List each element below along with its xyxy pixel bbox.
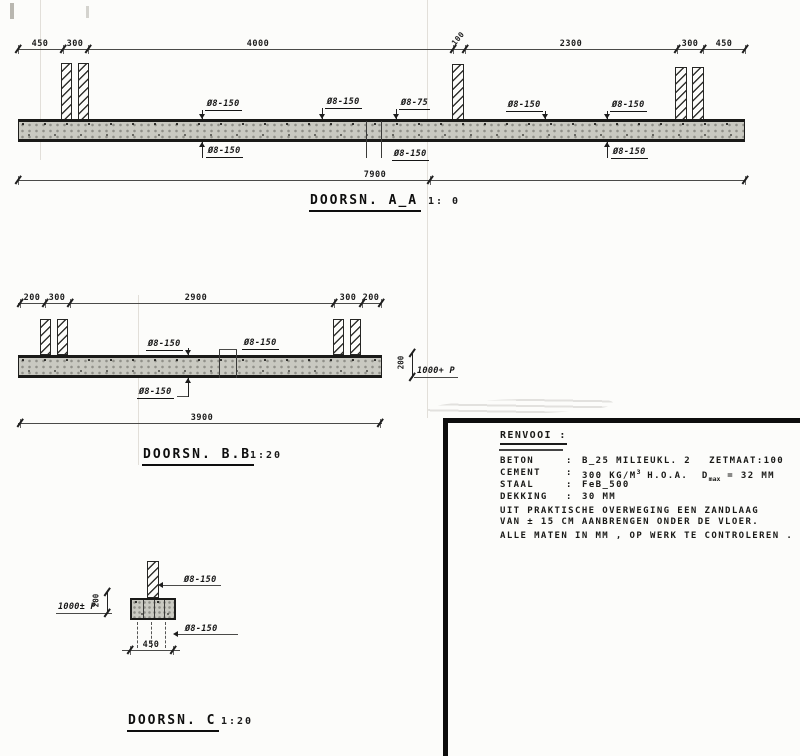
- legend-subscript: max: [709, 475, 721, 483]
- rebar-callout: Ø8-150: [146, 339, 183, 351]
- masonry-wall: [57, 319, 68, 355]
- legend-value-part: = 32 MM: [720, 471, 775, 481]
- block-joint: [164, 600, 165, 618]
- scan-mark: [86, 6, 89, 18]
- leader-line: [219, 349, 237, 350]
- legend-title: RENVOOI :: [500, 430, 567, 445]
- scan-mark: [10, 3, 14, 19]
- legend-row-beton: BETON:B_25 MILIEUKL. 2ZETMAAT:100: [500, 456, 784, 466]
- leader-arrow: [185, 378, 191, 383]
- leader-line: [176, 634, 238, 635]
- projection-line: [165, 622, 166, 648]
- masonry-wall: [675, 67, 687, 120]
- dim-label: 300: [682, 39, 699, 49]
- dim-label: 300: [49, 293, 66, 303]
- slab-joint: [236, 349, 237, 378]
- dim-label: 450: [32, 39, 49, 49]
- thickness-label: 200: [396, 356, 405, 370]
- dim-label: 2300: [560, 39, 582, 49]
- rebar-callout: Ø8-150: [242, 338, 279, 350]
- dim-label: 2900: [185, 293, 207, 303]
- level-mark: 1000+ P: [417, 366, 455, 376]
- dim-label: 300: [67, 39, 84, 49]
- legend-row-staal: STAAL:FeB_500: [500, 480, 630, 490]
- block-joint: [154, 600, 155, 618]
- masonry-wall: [333, 319, 344, 355]
- section-scale-c: 1:20: [221, 716, 253, 727]
- rebar-callout: Ø8-150: [206, 146, 243, 158]
- rebar-callout: Ø8-75: [399, 98, 430, 110]
- legend-label: STAAL: [500, 480, 566, 490]
- dim-label: 200: [363, 293, 380, 303]
- dim-label-total: 3900: [191, 413, 213, 423]
- level-line: [414, 377, 458, 378]
- legend-extra: ZETMAAT:100: [709, 456, 784, 466]
- masonry-wall: [692, 67, 704, 120]
- leader-line: [161, 585, 221, 586]
- leader-arrow: [158, 582, 163, 588]
- leader-arrow: [199, 142, 205, 147]
- leader-arrow: [185, 350, 191, 355]
- dim-label: 450: [143, 640, 160, 650]
- section-title-bb: DOORSN. B.B: [142, 447, 254, 466]
- rebar-callout: Ø8-150: [325, 97, 362, 109]
- masonry-wall: [61, 63, 72, 120]
- masonry-wall: [147, 561, 159, 598]
- dim-label: 200: [24, 293, 41, 303]
- dim-line-aa-top: [18, 49, 745, 50]
- leader-arrow: [542, 114, 548, 119]
- legend-value: FeB_500: [582, 480, 630, 490]
- section-scale-bb: 1:20: [250, 450, 282, 461]
- slab-joint: [381, 121, 382, 158]
- legend-label: DEKKING: [500, 492, 566, 502]
- concrete-slab-bb: [18, 355, 382, 378]
- scan-smudge: [428, 396, 613, 417]
- dim-line-bb-top: [18, 303, 382, 304]
- section-title-c: DOORSN. C: [127, 713, 219, 732]
- leader-arrow: [173, 631, 178, 637]
- rebar-callout: Ø8-150: [392, 149, 429, 161]
- masonry-wall: [350, 319, 361, 355]
- legend-title-underline: [499, 449, 563, 451]
- concrete-block-c: [130, 598, 176, 620]
- leader-arrow: [199, 114, 205, 119]
- leader-arrow: [604, 142, 610, 147]
- legend-colon: :: [566, 492, 582, 502]
- thickness-label: 200: [91, 594, 100, 608]
- rebar-callout: Ø8-150: [137, 387, 174, 399]
- legend-value: B_25 MILIEUKL. 2: [582, 456, 691, 466]
- slab-joint: [219, 349, 220, 378]
- projection-line: [137, 622, 138, 648]
- rebar-callout: Ø8-150: [610, 100, 647, 112]
- dim-label: 450: [716, 39, 733, 49]
- leader-arrow: [604, 114, 610, 119]
- dim-line-aa-total: [18, 180, 745, 181]
- legend-colon: :: [566, 456, 582, 466]
- legend-note: ALLE MATEN IN MM , OP WERK TE CONTROLERE…: [500, 531, 793, 541]
- fold-line: [138, 295, 139, 465]
- masonry-wall: [78, 63, 89, 120]
- dim-label: 4000: [247, 39, 269, 49]
- legend-note: VAN ± 15 CM AANBRENGEN ONDER DE VLOER.: [500, 517, 759, 527]
- dim-label: 300: [340, 293, 357, 303]
- rebar-callout: Ø8-150: [205, 99, 242, 111]
- drawing-canvas: 450 300 4000 100 2300 300 450 Ø8-150 Ø8-…: [0, 0, 800, 756]
- rebar-callout: Ø8-150: [611, 147, 648, 159]
- legend-label: BETON: [500, 456, 566, 466]
- legend-value-part: H.O.A. D: [640, 471, 708, 481]
- rebar-callout: Ø8-150: [185, 624, 218, 634]
- dim-label-total: 7900: [364, 170, 386, 180]
- level-line: [56, 613, 112, 614]
- leader-arrow: [319, 114, 325, 119]
- rebar-callout: Ø8-150: [184, 575, 217, 585]
- slab-joint: [366, 121, 367, 158]
- leader-arrow: [393, 114, 399, 119]
- block-joint: [143, 600, 144, 618]
- section-title-aa: DOORSN. A_A: [309, 193, 421, 212]
- legend-value: 30 MM: [582, 492, 616, 502]
- masonry-wall: [40, 319, 51, 355]
- section-scale-aa: 1: 0: [428, 196, 460, 207]
- legend-colon: :: [566, 480, 582, 490]
- dim-line-bb-total: [18, 423, 382, 424]
- level-mark: 1000± P: [58, 602, 96, 612]
- legend-note: UIT PRAKTISCHE OVERWEGING EEN ZANDLAAG: [500, 506, 759, 516]
- rebar-callout: Ø8-150: [506, 100, 543, 112]
- fold-line: [427, 0, 428, 418]
- legend-row-dekking: DEKKING:30 MM: [500, 492, 616, 502]
- masonry-wall: [452, 64, 464, 120]
